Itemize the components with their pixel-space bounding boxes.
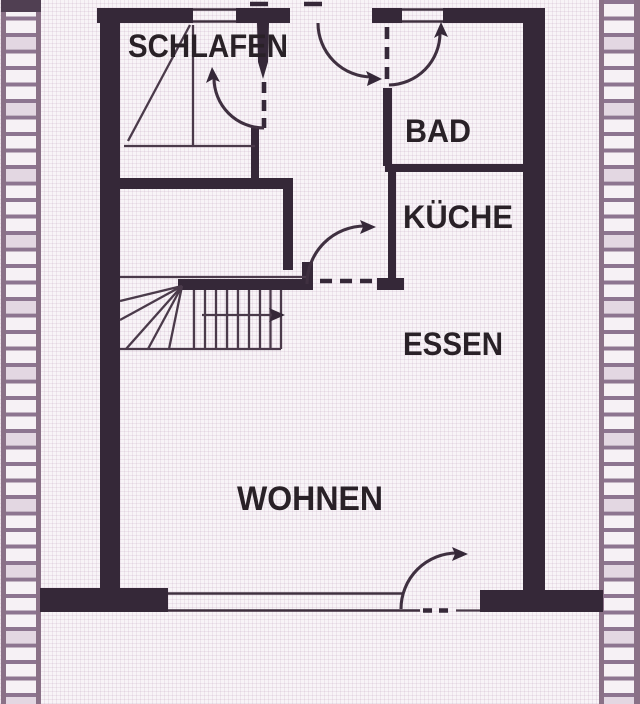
door-kueche-hall [307,220,376,284]
neighbor-wall-hatch-right [599,0,640,704]
hatch-rail-right-outer [634,0,640,704]
stair-treads [194,290,271,349]
window-wohnen-bottom [168,594,420,611]
window-bad-top [402,10,443,22]
wall-kueche-west [388,172,396,278]
room-label-kueche: KÜCHE [403,199,513,235]
room-labels: SCHLAFEN BAD KÜCHE ESSEN WOHNEN [128,28,513,518]
stair-winder-treads [120,286,182,349]
wall-kueche-west-foot [377,278,404,290]
wall-top-mid-segment [236,8,290,23]
hatch-bricks-left [1,0,41,704]
windows [168,10,443,611]
floor-plan-page: SCHLAFEN BAD KÜCHE ESSEN WOHNEN [0,0,640,704]
neighbor-wall-hatch-left [1,0,41,704]
exterior-walls [40,8,603,612]
wall-top-entry-stub [372,8,402,23]
door-entry-arrow-icon [366,71,382,86]
wall-bottom-left-block [40,588,168,612]
hatch-rail-left-outer [1,0,6,704]
room-label-wohnen: WOHNEN [237,480,383,518]
wall-hall-east [283,178,293,270]
hatch-dark-brick-top-left [1,0,41,12]
wall-left [100,8,120,600]
room-label-bad: BAD [405,113,471,149]
door-bad [387,22,448,86]
wall-schlafen-east-lower [251,128,259,180]
wall-bad-kueche-partition [385,164,523,172]
doors [206,22,480,611]
wall-bottom-right-block [480,590,603,612]
door-wohnen-entry [401,547,480,611]
wall-schlafen-south [120,178,293,189]
room-label-essen: ESSEN [403,326,503,362]
wall-right [523,8,545,590]
door-entry-top [318,23,382,86]
hatch-bricks-right [599,0,640,704]
door-schlafen [206,67,264,128]
window-schlafen-top [193,10,236,22]
floor-plan-drawing: SCHLAFEN BAD KÜCHE ESSEN WOHNEN [0,0,640,704]
room-label-schlafen: SCHLAFEN [128,28,288,64]
wall-stair-spine [178,279,313,290]
wall-bad-west [383,88,392,166]
